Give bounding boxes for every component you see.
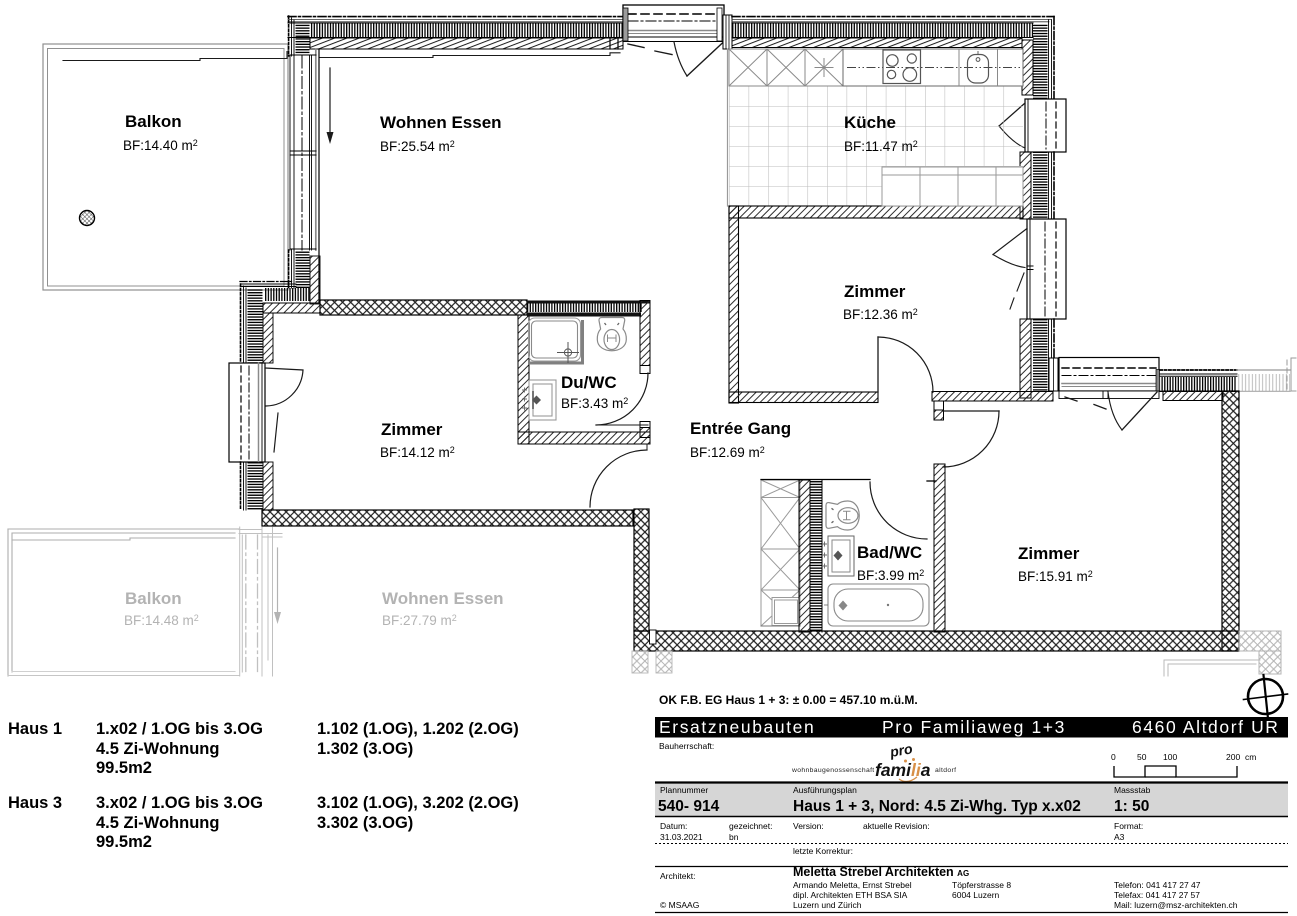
svg-text:Wohnen Essen: Wohnen Essen: [382, 589, 504, 608]
svg-text:1: 50: 1: 50: [1114, 798, 1149, 815]
svg-text:Format:: Format:: [1114, 821, 1143, 831]
svg-text:BF:3.43 m2: BF:3.43 m2: [561, 396, 628, 411]
svg-text:4.5 Zi-Wohnung: 4.5 Zi-Wohnung: [96, 814, 219, 832]
svg-text:Meletta Strebel Architekten AG: Meletta Strebel Architekten AG: [793, 865, 969, 879]
svg-text:540- 914: 540- 914: [658, 798, 720, 815]
svg-text:200: 200: [1226, 752, 1240, 762]
svg-text:BF:3.99 m2: BF:3.99 m2: [857, 568, 924, 583]
svg-text:A3: A3: [1114, 832, 1125, 842]
svg-text:© MSAAG: © MSAAG: [660, 900, 699, 910]
svg-text:Datum:: Datum:: [660, 821, 687, 831]
svg-text:BF:14.40 m2: BF:14.40 m2: [123, 138, 198, 153]
svg-text:Luzern und Zürich: Luzern und Zürich: [793, 900, 862, 910]
svg-text:Bauherrschaft:: Bauherrschaft:: [659, 741, 714, 751]
svg-text:Armando Meletta, Ernst Strebel: Armando Meletta, Ernst Strebel: [793, 880, 912, 890]
svg-text:wohnbaugenossenschaft: wohnbaugenossenschaft: [791, 767, 875, 774]
svg-text:Du/WC: Du/WC: [561, 373, 617, 392]
svg-text:Mail: luzern@msz-architekten.c: Mail: luzern@msz-architekten.ch: [1114, 900, 1238, 910]
svg-text:Küche: Küche: [844, 113, 896, 132]
svg-text:Zimmer: Zimmer: [381, 420, 443, 439]
svg-text:Plannummer: Plannummer: [660, 785, 708, 795]
svg-text:Telefon: 041 417 27 47: Telefon: 041 417 27 47: [1114, 880, 1201, 890]
svg-text:cm: cm: [1245, 752, 1256, 762]
svg-text:letzte Korrektur:: letzte Korrektur:: [793, 846, 853, 856]
svg-text:Zimmer: Zimmer: [844, 282, 906, 301]
svg-text:Haus 1 + 3, Nord: 4.5 Zi-Whg.: Haus 1 + 3, Nord: 4.5 Zi-Whg. Typ x.x02: [793, 798, 1081, 815]
svg-text:OK F.B. EG Haus 1 + 3: ± 0.00: OK F.B. EG Haus 1 + 3: ± 0.00 = 457.10 m…: [659, 693, 918, 707]
svg-text:0: 0: [1111, 752, 1116, 762]
svg-text:familia: familia: [875, 760, 931, 780]
svg-text:dipl. Architekten ETH BSA SIA: dipl. Architekten ETH BSA SIA: [793, 890, 908, 900]
svg-text:Architekt:: Architekt:: [660, 871, 695, 881]
svg-text:BF:14.48 m2: BF:14.48 m2: [124, 613, 199, 628]
svg-text:31.03.2021: 31.03.2021: [660, 832, 703, 842]
svg-text:Töpferstrasse 8: Töpferstrasse 8: [952, 880, 1011, 890]
svg-text:3.x02 / 1.OG bis 3.OG: 3.x02 / 1.OG bis 3.OG: [96, 794, 263, 812]
svg-text:6004 Luzern: 6004 Luzern: [952, 890, 1000, 900]
svg-text:1.302 (3.OG): 1.302 (3.OG): [317, 740, 413, 758]
svg-text:Ersatzneubauten: Ersatzneubauten: [659, 717, 815, 737]
svg-text:Balkon: Balkon: [125, 112, 182, 131]
svg-text:99.5m2: 99.5m2: [96, 833, 152, 851]
svg-text:Telefax: 041 417 27 57: Telefax: 041 417 27 57: [1114, 890, 1200, 900]
svg-text:Ausführungsplan: Ausführungsplan: [793, 785, 857, 795]
svg-text:aktuelle Revision:: aktuelle Revision:: [863, 821, 930, 831]
svg-text:1.x02 / 1.OG bis 3.OG: 1.x02 / 1.OG bis 3.OG: [96, 720, 263, 738]
svg-text:Haus 3: Haus 3: [8, 794, 62, 812]
svg-text:BF:11.47 m2: BF:11.47 m2: [844, 139, 918, 154]
svg-text:BF:27.79 m2: BF:27.79 m2: [382, 613, 457, 628]
svg-text:Zimmer: Zimmer: [1018, 544, 1080, 563]
svg-text:Pro Familiaweg 1+3: Pro Familiaweg 1+3: [882, 717, 1066, 737]
svg-text:50: 50: [1137, 752, 1147, 762]
svg-text:Haus 1: Haus 1: [8, 720, 62, 738]
svg-text:Balkon: Balkon: [125, 589, 182, 608]
svg-text:BF:14.12 m2: BF:14.12 m2: [380, 445, 455, 460]
svg-text:Wohnen Essen: Wohnen Essen: [380, 113, 502, 132]
svg-text:3.302 (3.OG): 3.302 (3.OG): [317, 814, 413, 832]
svg-text:Version:: Version:: [793, 821, 824, 831]
svg-text:gezeichnet:: gezeichnet:: [729, 821, 772, 831]
svg-text:Entrée Gang: Entrée Gang: [690, 419, 791, 438]
svg-text:99.5m2: 99.5m2: [96, 759, 152, 777]
svg-text:Massstab: Massstab: [1114, 785, 1151, 795]
svg-text:BF:15.91 m2: BF:15.91 m2: [1018, 569, 1093, 584]
svg-text:1.102 (1.OG), 1.202 (2.OG): 1.102 (1.OG), 1.202 (2.OG): [317, 720, 519, 738]
svg-text:BF:12.69 m2: BF:12.69 m2: [690, 445, 765, 460]
svg-text:100: 100: [1163, 752, 1177, 762]
svg-text:altdorf: altdorf: [935, 767, 956, 774]
svg-text:6460 Altdorf UR: 6460 Altdorf UR: [1132, 717, 1280, 737]
svg-text:bn: bn: [729, 832, 739, 842]
svg-text:Bad/WC: Bad/WC: [857, 543, 922, 562]
svg-text:BF:25.54 m2: BF:25.54 m2: [380, 139, 455, 154]
svg-text:3.102 (1.OG), 3.202 (2.OG): 3.102 (1.OG), 3.202 (2.OG): [317, 794, 519, 812]
svg-text:BF:12.36 m2: BF:12.36 m2: [843, 307, 918, 322]
svg-text:4.5 Zi-Wohnung: 4.5 Zi-Wohnung: [96, 740, 219, 758]
